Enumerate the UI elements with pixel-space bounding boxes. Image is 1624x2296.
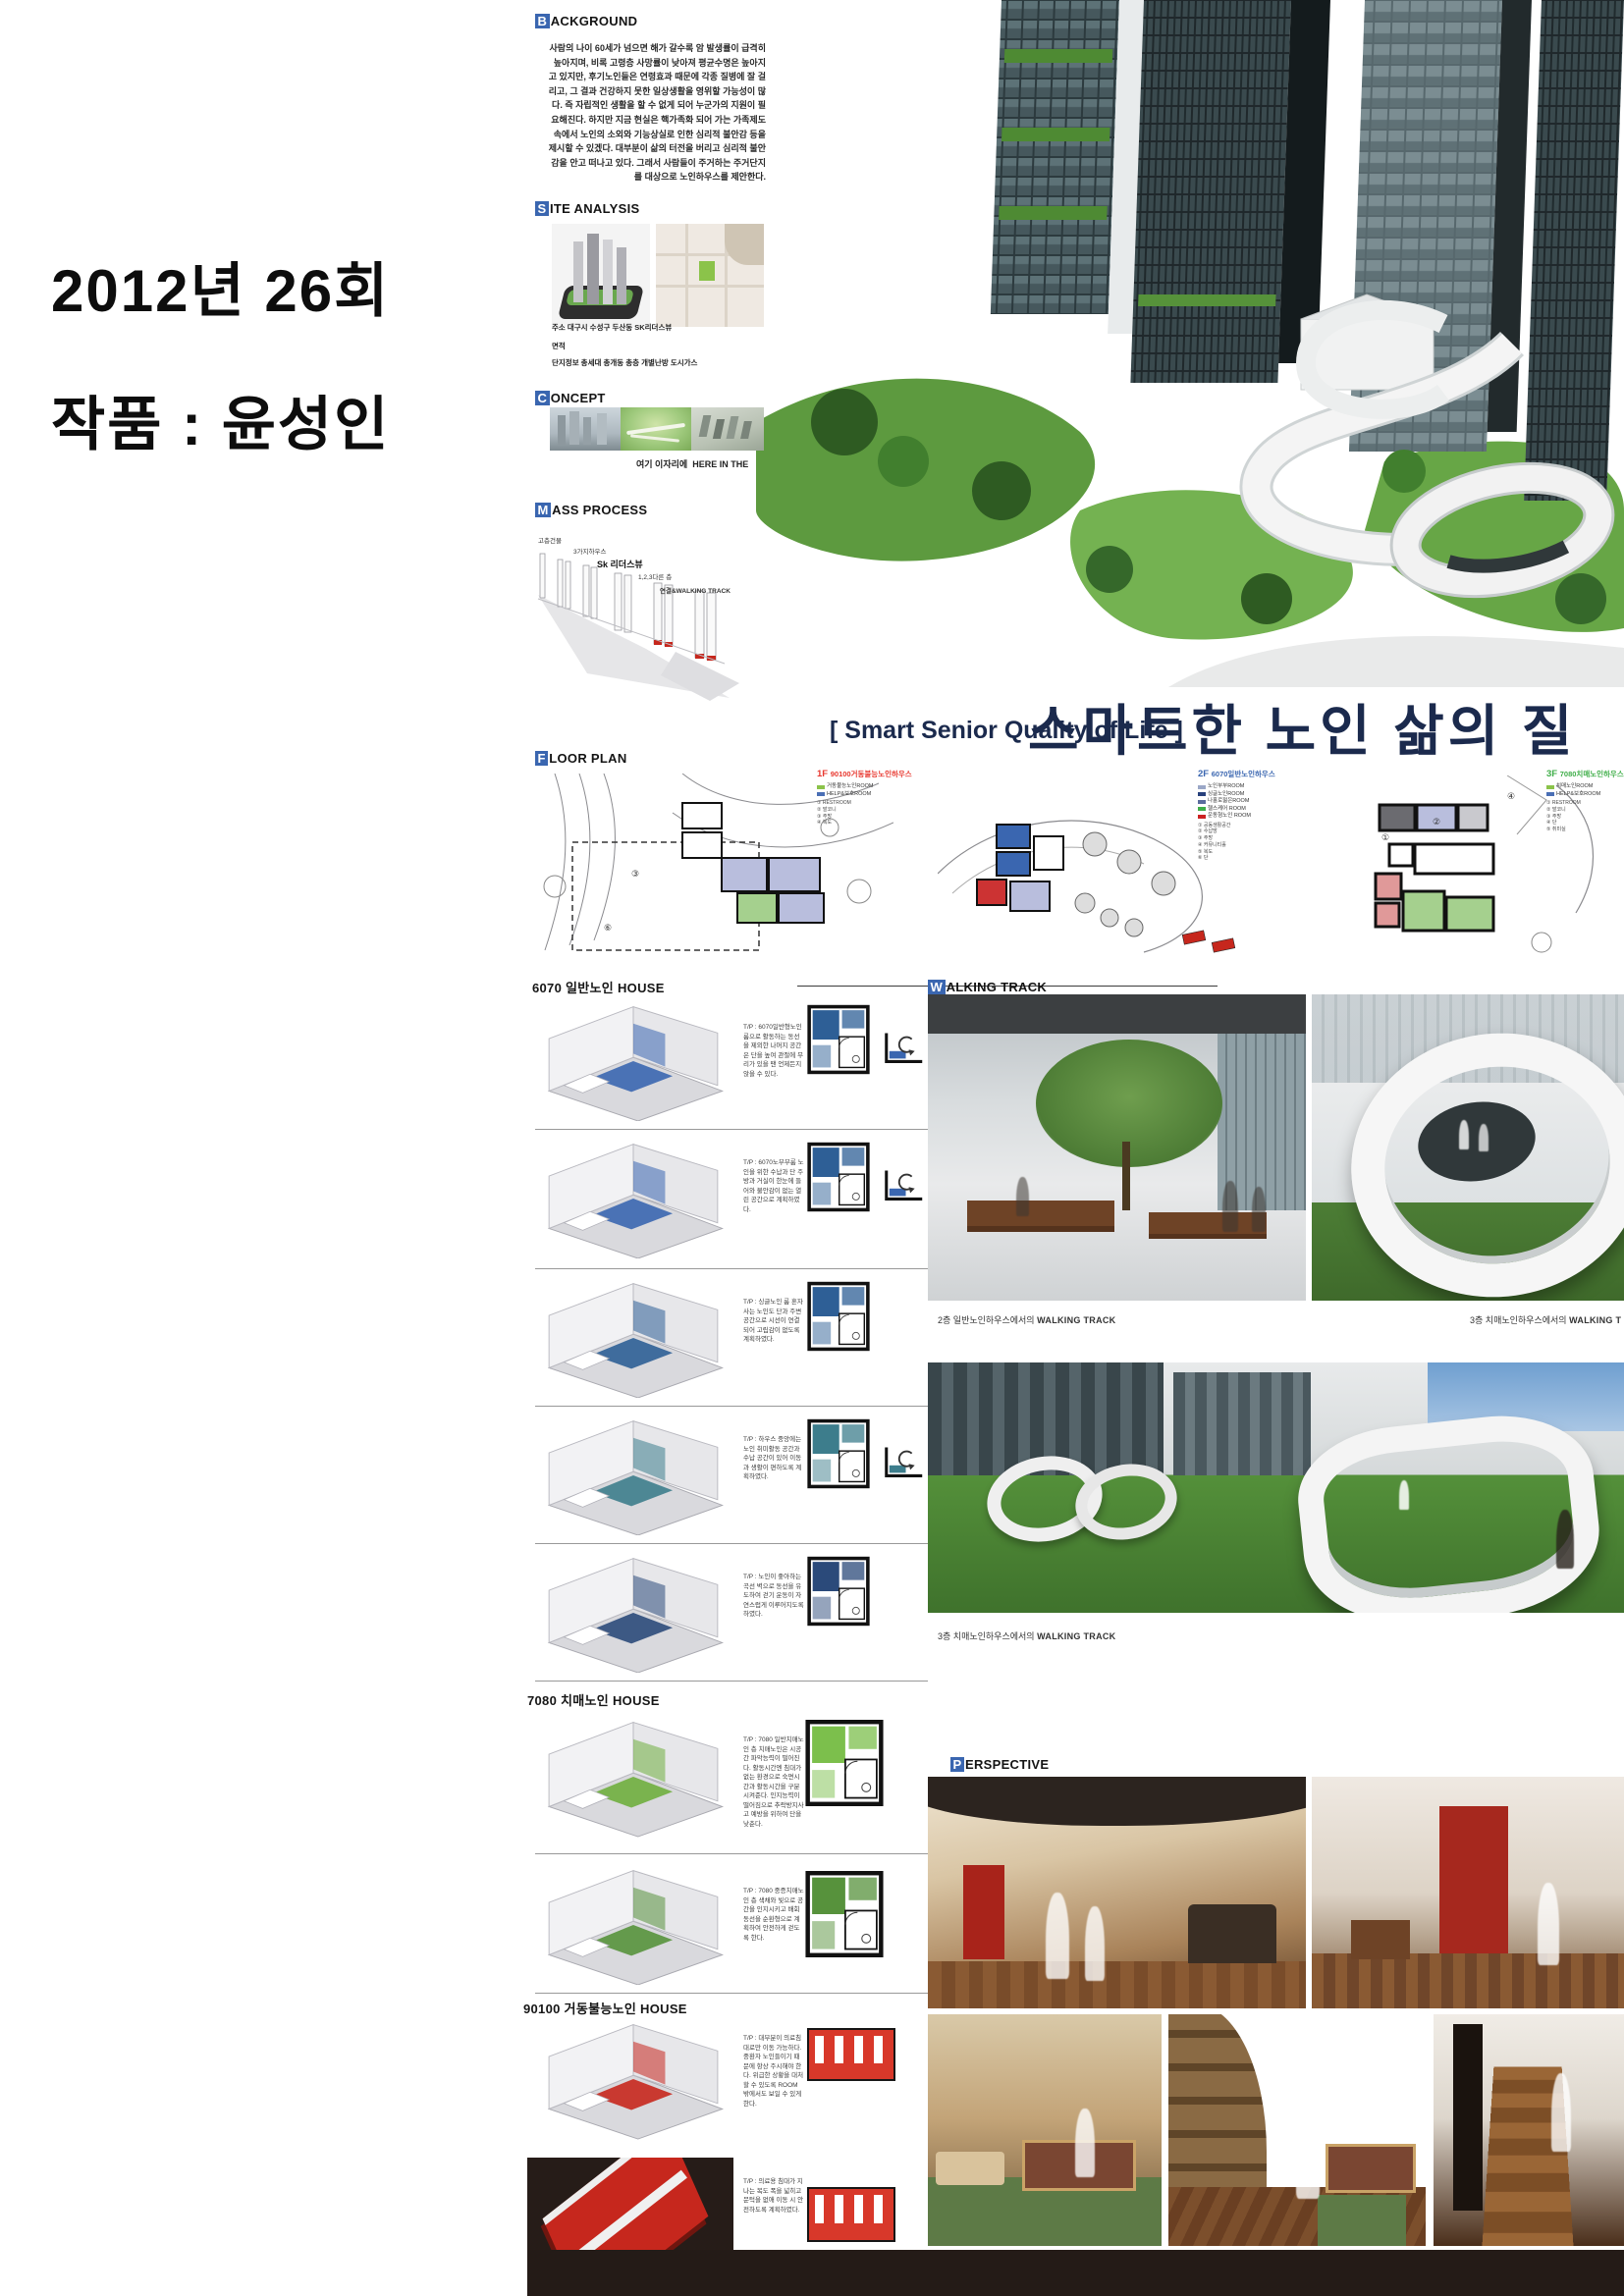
site-area: 면적 (552, 341, 566, 351)
tree-trunk (1122, 1142, 1130, 1210)
person-silhouette (1399, 1480, 1409, 1510)
author-title: 작품 : 윤성인 (51, 377, 390, 462)
person-silhouette (1538, 1883, 1559, 1965)
svg-text:⑥: ⑥ (604, 923, 612, 933)
unit-plan-6070-4 (807, 1417, 870, 1490)
person-silhouette (1085, 1906, 1105, 1981)
unit-section-sketch (882, 1166, 927, 1203)
axon-room-6070-4 (530, 1414, 736, 1535)
shelf (1188, 1904, 1276, 1963)
legend-chip (817, 785, 825, 789)
sofa (1351, 1920, 1410, 1959)
perspective-render-1 (928, 1777, 1306, 2008)
walking-caption-2: 3층 치매노인하우스에서의 WALKING T (1470, 1313, 1621, 1326)
person-silhouette (1459, 1120, 1469, 1149)
axon-room-7080-2 (530, 1863, 736, 1985)
mass-label: 연결&WALKING TRACK (660, 585, 731, 595)
unit-section-sketch (882, 1029, 927, 1066)
bench (936, 2152, 1004, 2185)
section-initial-badge: M (535, 503, 551, 517)
person-silhouette (1551, 2073, 1571, 2152)
concept-image-masterplan (621, 407, 691, 451)
divider (535, 1129, 928, 1130)
section-initial-badge: C (535, 391, 550, 405)
green-carpet (1318, 2195, 1406, 2246)
planter (967, 1201, 1114, 1226)
legend-chip (1198, 807, 1206, 811)
legend-chip (1198, 800, 1206, 804)
divider (535, 1993, 928, 1994)
unit-tip: T/P : 하우스 중앙에는 노인 취미활동 공간과 수납 공간이 있어 이동과… (743, 1435, 804, 1482)
mass-label: 3가지하우스 (573, 546, 607, 556)
house-6070-title: 6070 일반노인 HOUSE (532, 978, 665, 996)
section-initial-badge: P (950, 1757, 964, 1772)
walking-track-courtyard-render (928, 994, 1306, 1301)
person-silhouette (1296, 2105, 1320, 2199)
divider (535, 1268, 928, 1269)
concept-image-city (550, 407, 621, 451)
concept-caption: 여기 이자리에 HERE IN THE (636, 457, 748, 470)
concept-image-aerial (691, 407, 764, 451)
axon-room-90100-1 (530, 2014, 736, 2142)
unit-plan-7080-2 (805, 1869, 884, 1959)
person-silhouette (1252, 1187, 1266, 1232)
person-silhouette (1046, 1893, 1069, 1979)
wood-floor (928, 1961, 1306, 2008)
unit-tip: T/P : 노인이 좋아하는 곡선 벽으로 동선을 유도하여 걷기 운동이 자연… (743, 1573, 804, 1620)
axon-room-7080-1 (530, 1710, 736, 1842)
section-walking-track-title: WALKING TRACK (928, 980, 1047, 994)
plan-caption-2f: 2F 6070일반노인하우스 노인부부ROOM 싱글노인ROOM 나홀로젊은RO… (1198, 769, 1292, 862)
divider (535, 1406, 928, 1407)
perspective-render-3 (928, 2014, 1162, 2246)
divider (535, 1543, 928, 1544)
legend-chip (1198, 815, 1206, 819)
mass-label: 고층건물 (538, 535, 562, 545)
dark-doorway (1453, 2024, 1483, 2211)
unit-plan-6070-3 (807, 1280, 870, 1353)
walking-track-large-render (928, 1362, 1624, 1613)
site-marker (699, 261, 715, 281)
section-initial-badge: W (928, 980, 946, 994)
planter (1149, 1212, 1267, 1234)
axon-room-6070-2 (530, 1137, 736, 1258)
svg-text:④: ④ (1507, 791, 1515, 801)
plan-caption-1f: 1F 90100거동불능노인하우스 거동불능노인ROOM HELP&보호ROOM… (817, 769, 911, 827)
unit-tip: T/P : 대부분이 의료침대로만 이동 가능하다. 중환자 노인들이기 때문에… (743, 2034, 804, 2109)
sofa (1326, 2144, 1416, 2193)
hero-render-image (756, 0, 1624, 687)
section-initial-badge: S (535, 201, 549, 216)
unit-tip: T/P : 의료용 침대가 지나는 복도 폭을 넓히고 문턱을 없애 이동 시 … (743, 2177, 804, 2215)
legend-chip (1546, 792, 1554, 796)
section-perspective-title: PERSPECTIVE (950, 1757, 1049, 1772)
person-silhouette (1075, 2109, 1095, 2177)
poster-footer-bar (527, 2250, 1624, 2296)
unit-section-sketch (882, 1443, 927, 1480)
svg-text:③: ③ (631, 869, 639, 879)
site-map-image (656, 224, 764, 327)
background-paragraph: 사람의 나이 60세가 넘으면 해가 갈수록 암 발생률이 급격히 높아지며, … (546, 41, 766, 185)
site-info: 단지정보 총세대 총개동 총층 개별난방 도시가스 (552, 357, 697, 368)
legend-chip (817, 792, 825, 796)
walking-track-loop-render (1312, 994, 1624, 1301)
person-silhouette (1479, 1124, 1489, 1151)
section-background-title: BACKGROUND (535, 14, 637, 28)
legend-chip (1198, 785, 1206, 789)
mass-label: Sk 리더스뷰 (597, 558, 643, 570)
section-initial-badge: F (535, 751, 548, 766)
person-silhouette (1556, 1510, 1574, 1569)
section-mass-process-title: MASS PROCESS (535, 503, 647, 517)
poster-page: 2012년 26회 작품 : 윤성인 (0, 0, 1624, 2296)
curved-ceiling (928, 1777, 1306, 1826)
section-concept-title: CONCEPT (535, 391, 606, 405)
perspective-render-2 (1312, 1777, 1624, 2008)
mass-process-diagram (528, 526, 774, 703)
competition-year-title: 2012년 26회 (51, 243, 390, 329)
walking-caption-1: 2층 일반노인하우스에서의 WALKING TRACK (938, 1313, 1116, 1326)
house-7080-title: 7080 치매노인 HOUSE (527, 1690, 660, 1709)
section-site-analysis-title: SITE ANALYSIS (535, 201, 639, 216)
plan-caption-3f: 3F 7080치매노인하우스 치매노인ROOM HELP&보호ROOM ① RE… (1546, 769, 1624, 833)
unit-plan-90100-2 (807, 2187, 895, 2242)
unit-plan-6070-5 (807, 1555, 870, 1628)
unit-tip: T/P : 6070노부부룸 노인을 위한 수납과 단 주방과 거실이 한눈에 … (743, 1158, 804, 1214)
section-floor-plan-title: FLOOR PLAN (535, 751, 627, 766)
wood-floor (1312, 1953, 1624, 2008)
divider (535, 1853, 928, 1854)
unit-plan-90100-1 (807, 2028, 895, 2081)
main-title-kr: 스마트한 노인 삶의 질 (1028, 687, 1576, 767)
axon-room-6070-3 (530, 1276, 736, 1398)
unit-plan-7080-1 (805, 1716, 884, 1810)
unit-tip: T/P : 7080 일반치매노인 층 치매노인은 시공간 파악능력이 떨어진다… (743, 1735, 804, 1829)
track-loop (1291, 1407, 1606, 1613)
person-silhouette (1222, 1181, 1238, 1232)
person-silhouette (1016, 1177, 1029, 1216)
legend-chip (1198, 792, 1206, 796)
walking-caption-3: 3층 치매노인하우스에서의 WALKING TRACK (938, 1629, 1116, 1642)
section-initial-badge: B (535, 14, 550, 28)
red-accent-wall (1439, 1806, 1508, 1953)
site-address: 주소 대구시 수성구 두산동 SK리더스뷰 (552, 322, 672, 333)
site-model-image (552, 224, 650, 327)
unit-plan-6070-1 (807, 1003, 870, 1076)
perspective-render-5 (1434, 2014, 1624, 2246)
perspective-render-4 (1168, 2014, 1426, 2246)
unit-plan-6070-2 (807, 1141, 870, 1213)
unit-tip: T/P : 싱글노인 룸 혼자 사는 노인도 단과 주변 공간으로 시선이 연결… (743, 1298, 804, 1345)
legend-chip (1546, 785, 1554, 789)
mass-label: 1,2,3다른 층 (638, 571, 672, 581)
svg-text:②: ② (1433, 817, 1440, 827)
axon-room-6070-5 (530, 1551, 736, 1673)
axon-room-6070-1 (530, 999, 736, 1121)
unit-tip: T/P : 7080 중증치매노인 층 색채와 빛으로 공간을 인지시키고 배회… (743, 1887, 804, 1943)
divider (535, 1681, 928, 1682)
red-accent-wall (963, 1865, 1004, 1959)
svg-text:①: ① (1381, 832, 1389, 842)
unit-tip: T/P : 6070일반형노인 룸으로 활동하는 동선을 제외한 나머지 공간은… (743, 1023, 804, 1079)
glass-towers (1173, 1372, 1311, 1475)
